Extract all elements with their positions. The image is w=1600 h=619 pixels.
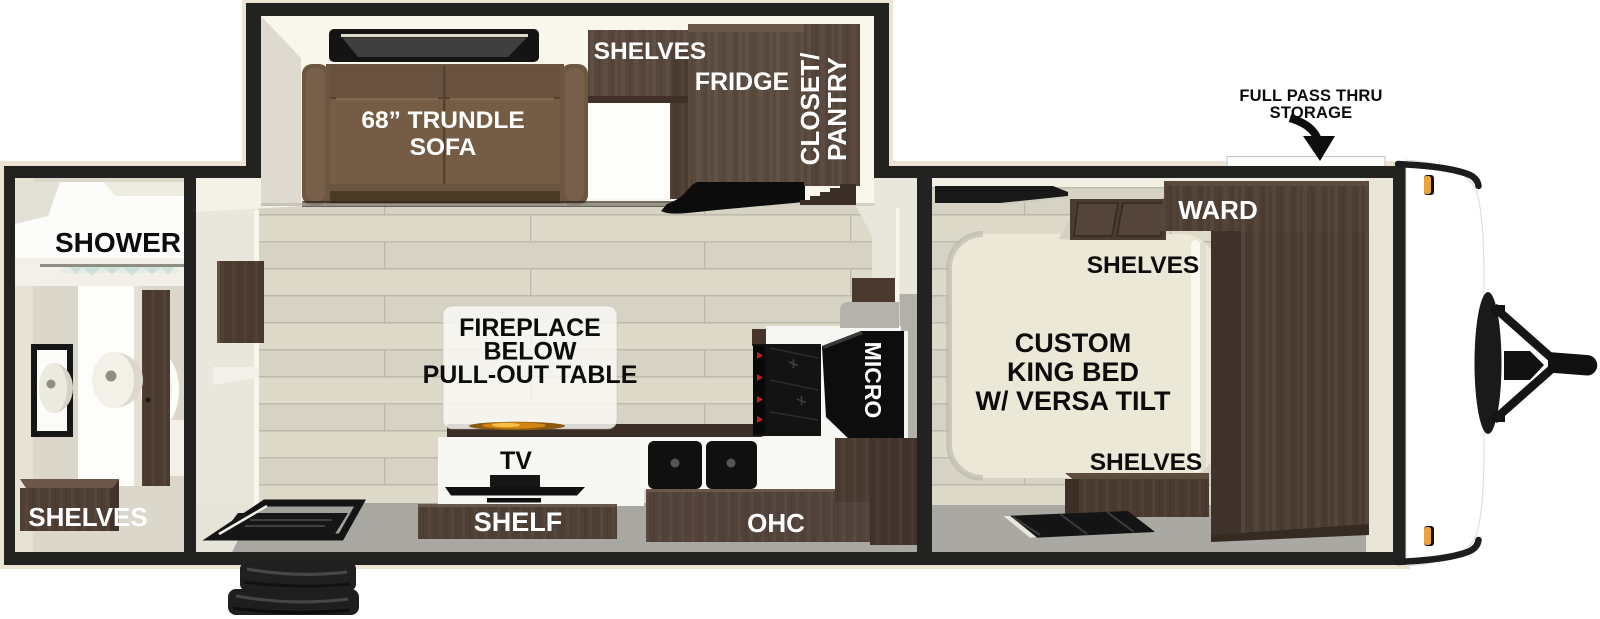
svg-text:TV: TV (500, 447, 532, 475)
svg-text:SOFA: SOFA (410, 134, 477, 161)
svg-text:MICRO: MICRO (860, 342, 886, 419)
svg-text:SHELVES: SHELVES (1087, 252, 1200, 279)
svg-text:SHELVES: SHELVES (1090, 449, 1203, 476)
svg-text:FULL PASS THRU: FULL PASS THRU (1239, 87, 1382, 105)
svg-text:CUSTOM: CUSTOM (1015, 328, 1132, 358)
svg-text:WARD: WARD (1178, 195, 1257, 225)
svg-text:68” TRUNDLE: 68” TRUNDLE (361, 107, 524, 134)
svg-text:KING BED: KING BED (1007, 357, 1139, 387)
svg-text:FRIDGE: FRIDGE (695, 68, 789, 96)
svg-text:CLOSET/: CLOSET/ (795, 53, 825, 166)
svg-text:SHELVES: SHELVES (28, 502, 147, 532)
svg-text:STORAGE: STORAGE (1270, 104, 1353, 122)
svg-text:PULL-OUT TABLE: PULL-OUT TABLE (423, 361, 638, 389)
svg-text:SHELF: SHELF (474, 507, 563, 537)
svg-text:W/ VERSA TILT: W/ VERSA TILT (976, 386, 1171, 416)
svg-text:SHOWER: SHOWER (55, 227, 181, 258)
svg-text:OHC: OHC (747, 508, 805, 538)
svg-text:PANTRY: PANTRY (822, 57, 852, 161)
svg-text:SHELVES: SHELVES (594, 38, 707, 65)
